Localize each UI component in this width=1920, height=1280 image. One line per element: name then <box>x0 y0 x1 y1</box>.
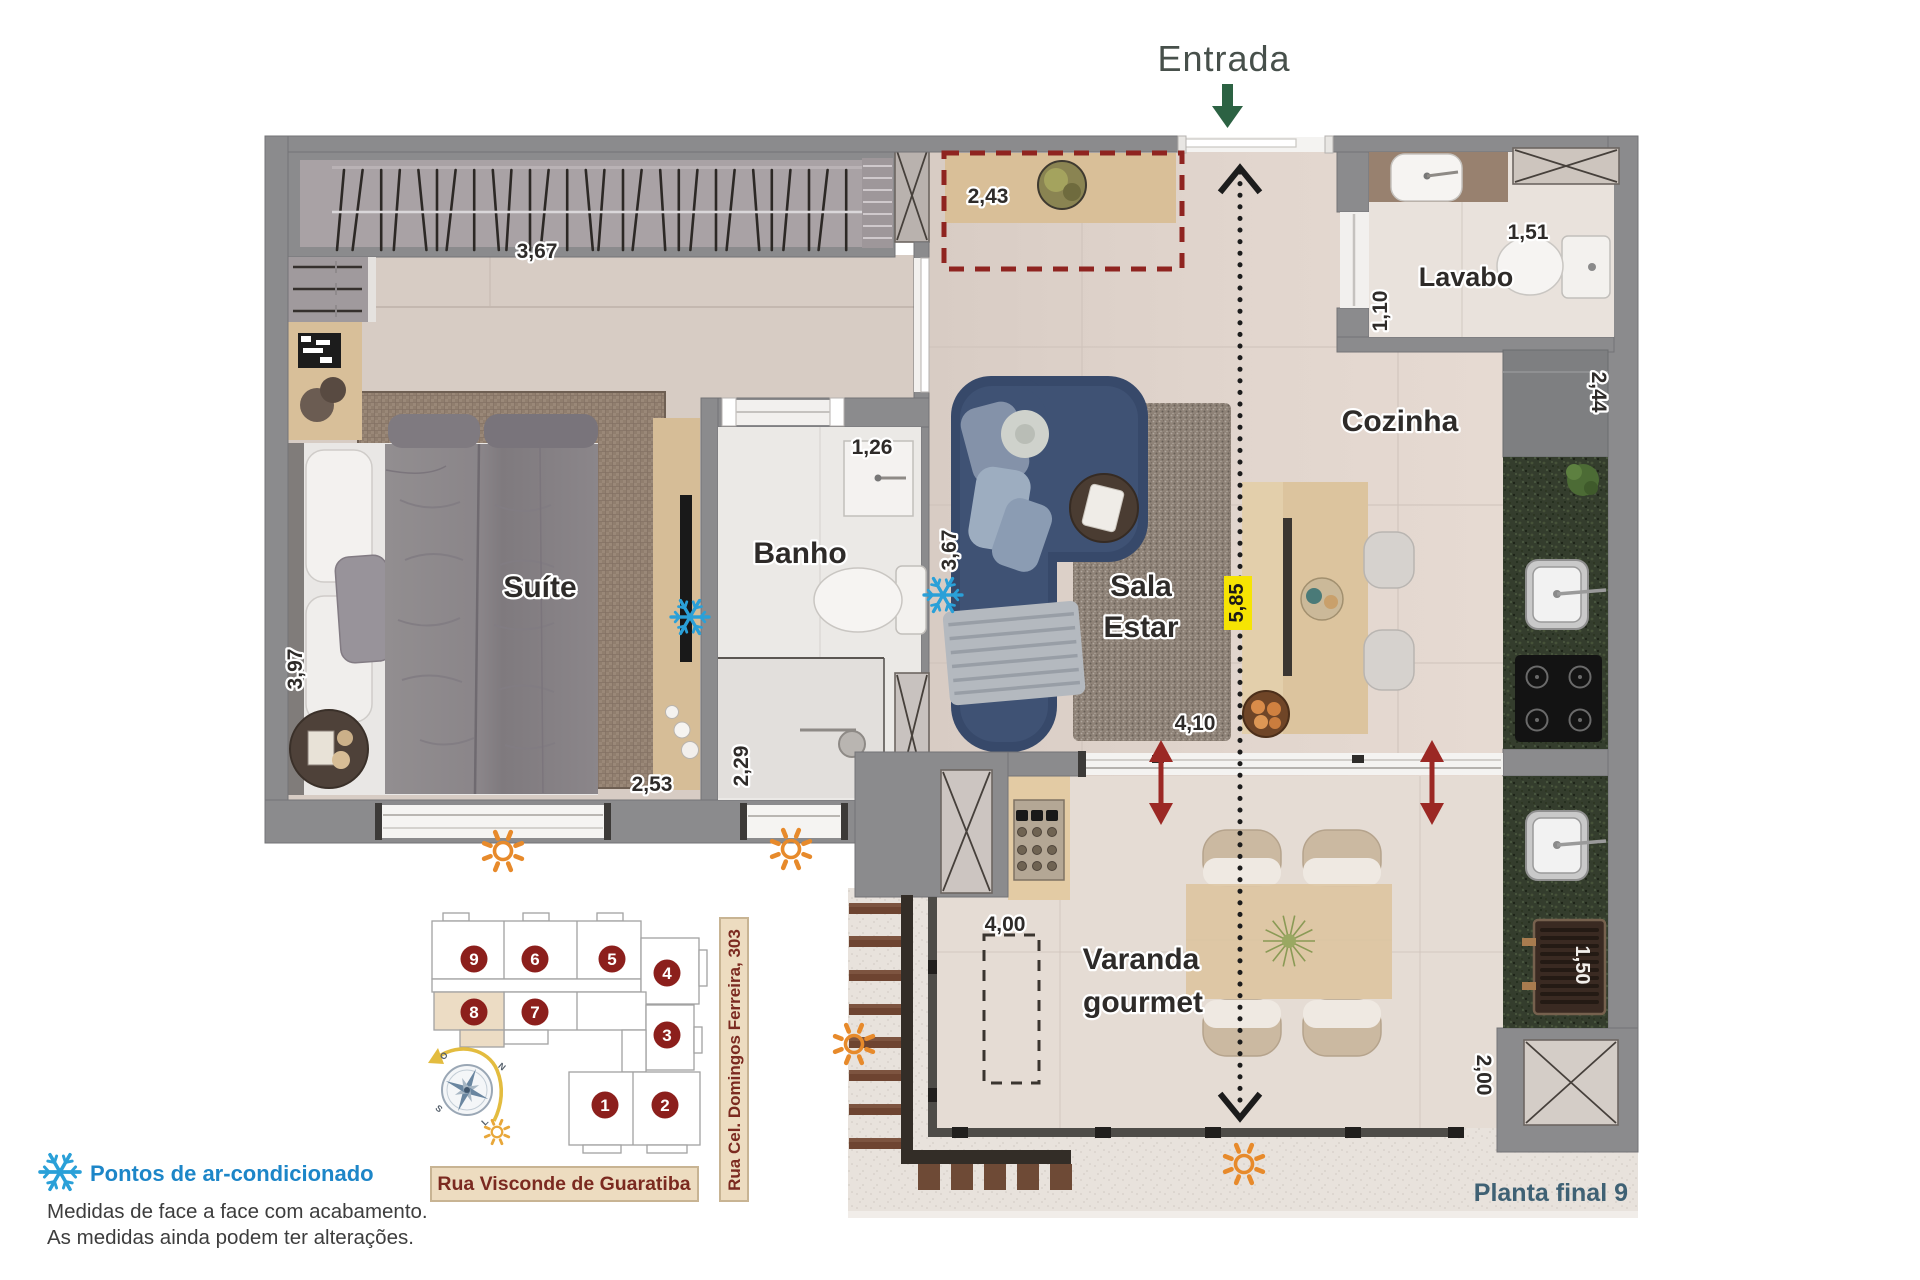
svg-text:Suíte: Suíte <box>503 571 576 604</box>
svg-text:Sala: Sala <box>1110 570 1172 603</box>
svg-text:4,10: 4,10 <box>1175 712 1216 735</box>
svg-text:5: 5 <box>607 950 616 969</box>
svg-text:Lavabo: Lavabo <box>1419 262 1514 292</box>
svg-text:Entrada: Entrada <box>1157 38 1290 79</box>
svg-text:1,50: 1,50 <box>1571 946 1593 985</box>
svg-text:7: 7 <box>530 1003 539 1022</box>
svg-text:Banho: Banho <box>753 537 846 570</box>
svg-text:2: 2 <box>660 1096 669 1115</box>
svg-text:Planta final 9: Planta final 9 <box>1474 1179 1628 1207</box>
svg-text:Estar: Estar <box>1103 611 1178 644</box>
svg-text:2,44: 2,44 <box>1587 372 1610 413</box>
svg-text:3,97: 3,97 <box>284 649 307 690</box>
svg-text:Cozinha: Cozinha <box>1342 405 1459 438</box>
svg-text:gourmet: gourmet <box>1083 986 1203 1019</box>
svg-text:1: 1 <box>600 1096 609 1115</box>
svg-text:3: 3 <box>662 1026 671 1045</box>
svg-text:9: 9 <box>469 950 478 969</box>
svg-text:3,67: 3,67 <box>938 530 961 571</box>
svg-text:1,51: 1,51 <box>1508 221 1549 244</box>
svg-text:2,43: 2,43 <box>968 185 1009 208</box>
svg-text:6: 6 <box>530 950 539 969</box>
svg-text:5,85: 5,85 <box>1226 584 1248 623</box>
svg-text:1,10: 1,10 <box>1369 291 1392 332</box>
svg-text:8: 8 <box>469 1003 478 1022</box>
svg-text:3,67: 3,67 <box>517 240 558 263</box>
svg-text:As medidas ainda podem ter alt: As medidas ainda podem ter alterações. <box>47 1226 414 1249</box>
svg-text:2,00: 2,00 <box>1472 1055 1495 1096</box>
svg-text:Medidas de face a face com aca: Medidas de face a face com acabamento. <box>47 1200 428 1223</box>
svg-text:Varanda: Varanda <box>1083 943 1200 976</box>
svg-text:Rua Visconde de Guaratiba: Rua Visconde de Guaratiba <box>437 1173 690 1195</box>
svg-text:4: 4 <box>662 964 672 983</box>
svg-text:4,00: 4,00 <box>985 913 1026 936</box>
svg-text:1,26: 1,26 <box>852 436 893 459</box>
svg-text:Rua Cel. Domingos Ferreira, 30: Rua Cel. Domingos Ferreira, 303 <box>725 929 744 1191</box>
svg-text:2,29: 2,29 <box>730 746 753 787</box>
svg-text:Pontos de ar-condicionado: Pontos de ar-condicionado <box>90 1161 374 1186</box>
svg-text:2,53: 2,53 <box>632 773 673 796</box>
